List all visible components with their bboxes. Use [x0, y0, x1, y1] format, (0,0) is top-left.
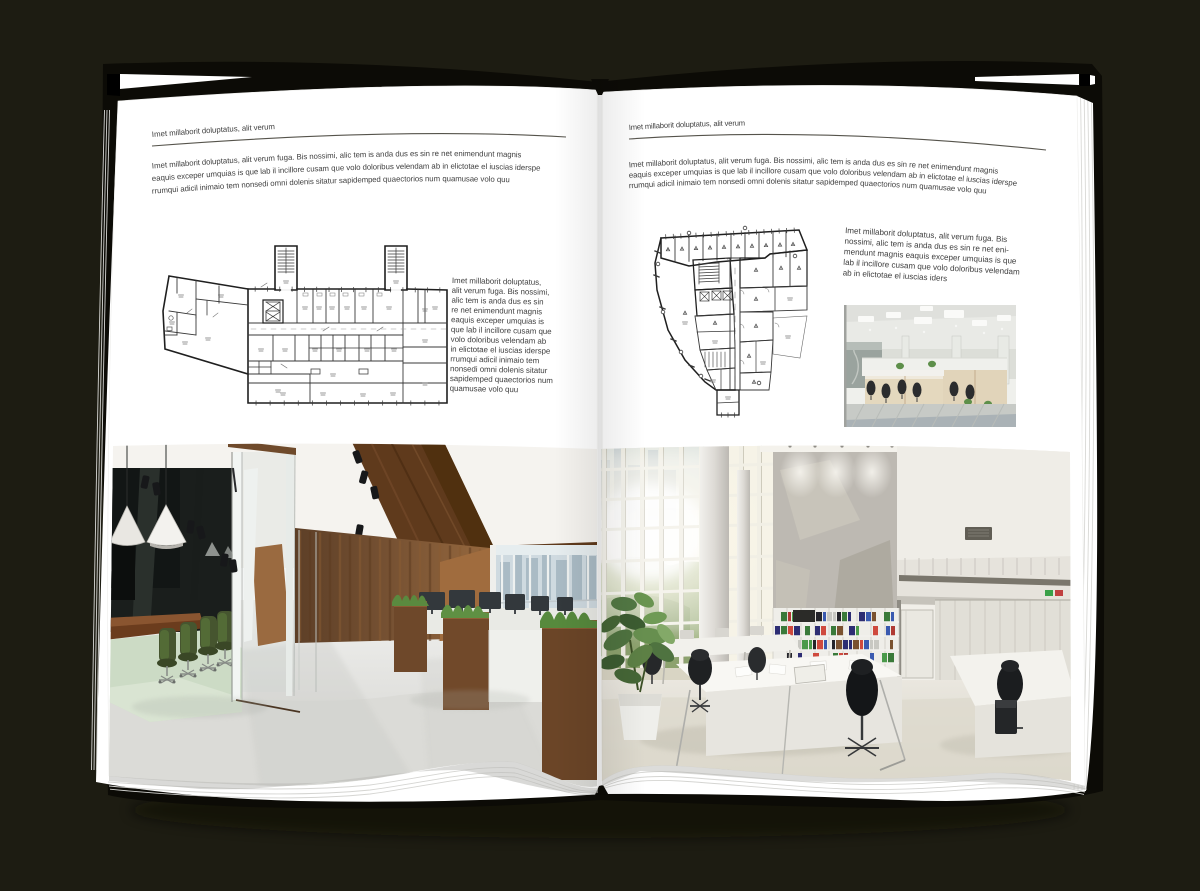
svg-text:quamusae volo quu: quamusae volo quu	[450, 384, 519, 394]
